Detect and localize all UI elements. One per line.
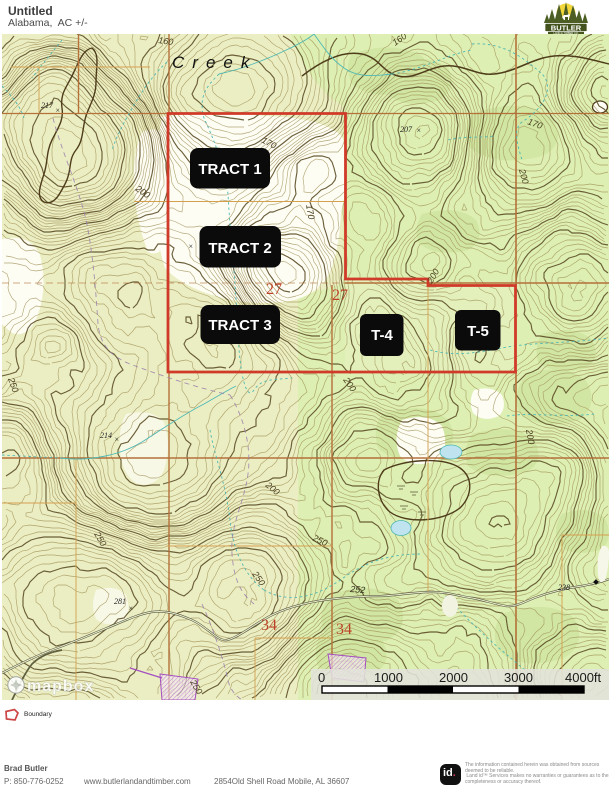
svg-text:1000: 1000 [374,670,403,685]
svg-text:27: 27 [266,281,282,298]
svg-text:2000: 2000 [439,670,468,685]
svg-text:T-5: T-5 [467,323,489,340]
svg-text:×: × [128,604,133,613]
svg-text:34: 34 [261,617,277,634]
svg-text:281: 281 [114,597,126,606]
svg-text:3000: 3000 [504,670,533,685]
svg-text:T-4: T-4 [371,327,393,344]
svg-text:TRACT 1: TRACT 1 [198,161,261,178]
svg-text:238: 238 [558,583,570,592]
svg-text:Creek: Creek [172,53,257,72]
svg-text:160: 160 [158,35,174,47]
svg-text:×: × [416,126,421,135]
svg-text:×: × [114,435,119,444]
svg-text:4000ft: 4000ft [565,670,602,685]
svg-text:34: 34 [336,621,352,638]
svg-text:207: 207 [400,125,413,134]
svg-text:0: 0 [318,670,325,685]
svg-text:214: 214 [100,431,112,440]
svg-text:217: 217 [41,101,54,110]
svg-text:×: × [188,242,193,251]
svg-text:×: × [55,106,60,115]
svg-text:TRACT 3: TRACT 3 [208,317,271,334]
svg-text:27: 27 [332,287,348,304]
svg-text:252: 252 [349,584,366,595]
svg-text:mapbox: mapbox [27,678,94,695]
svg-text:TRACT 2: TRACT 2 [208,240,271,257]
